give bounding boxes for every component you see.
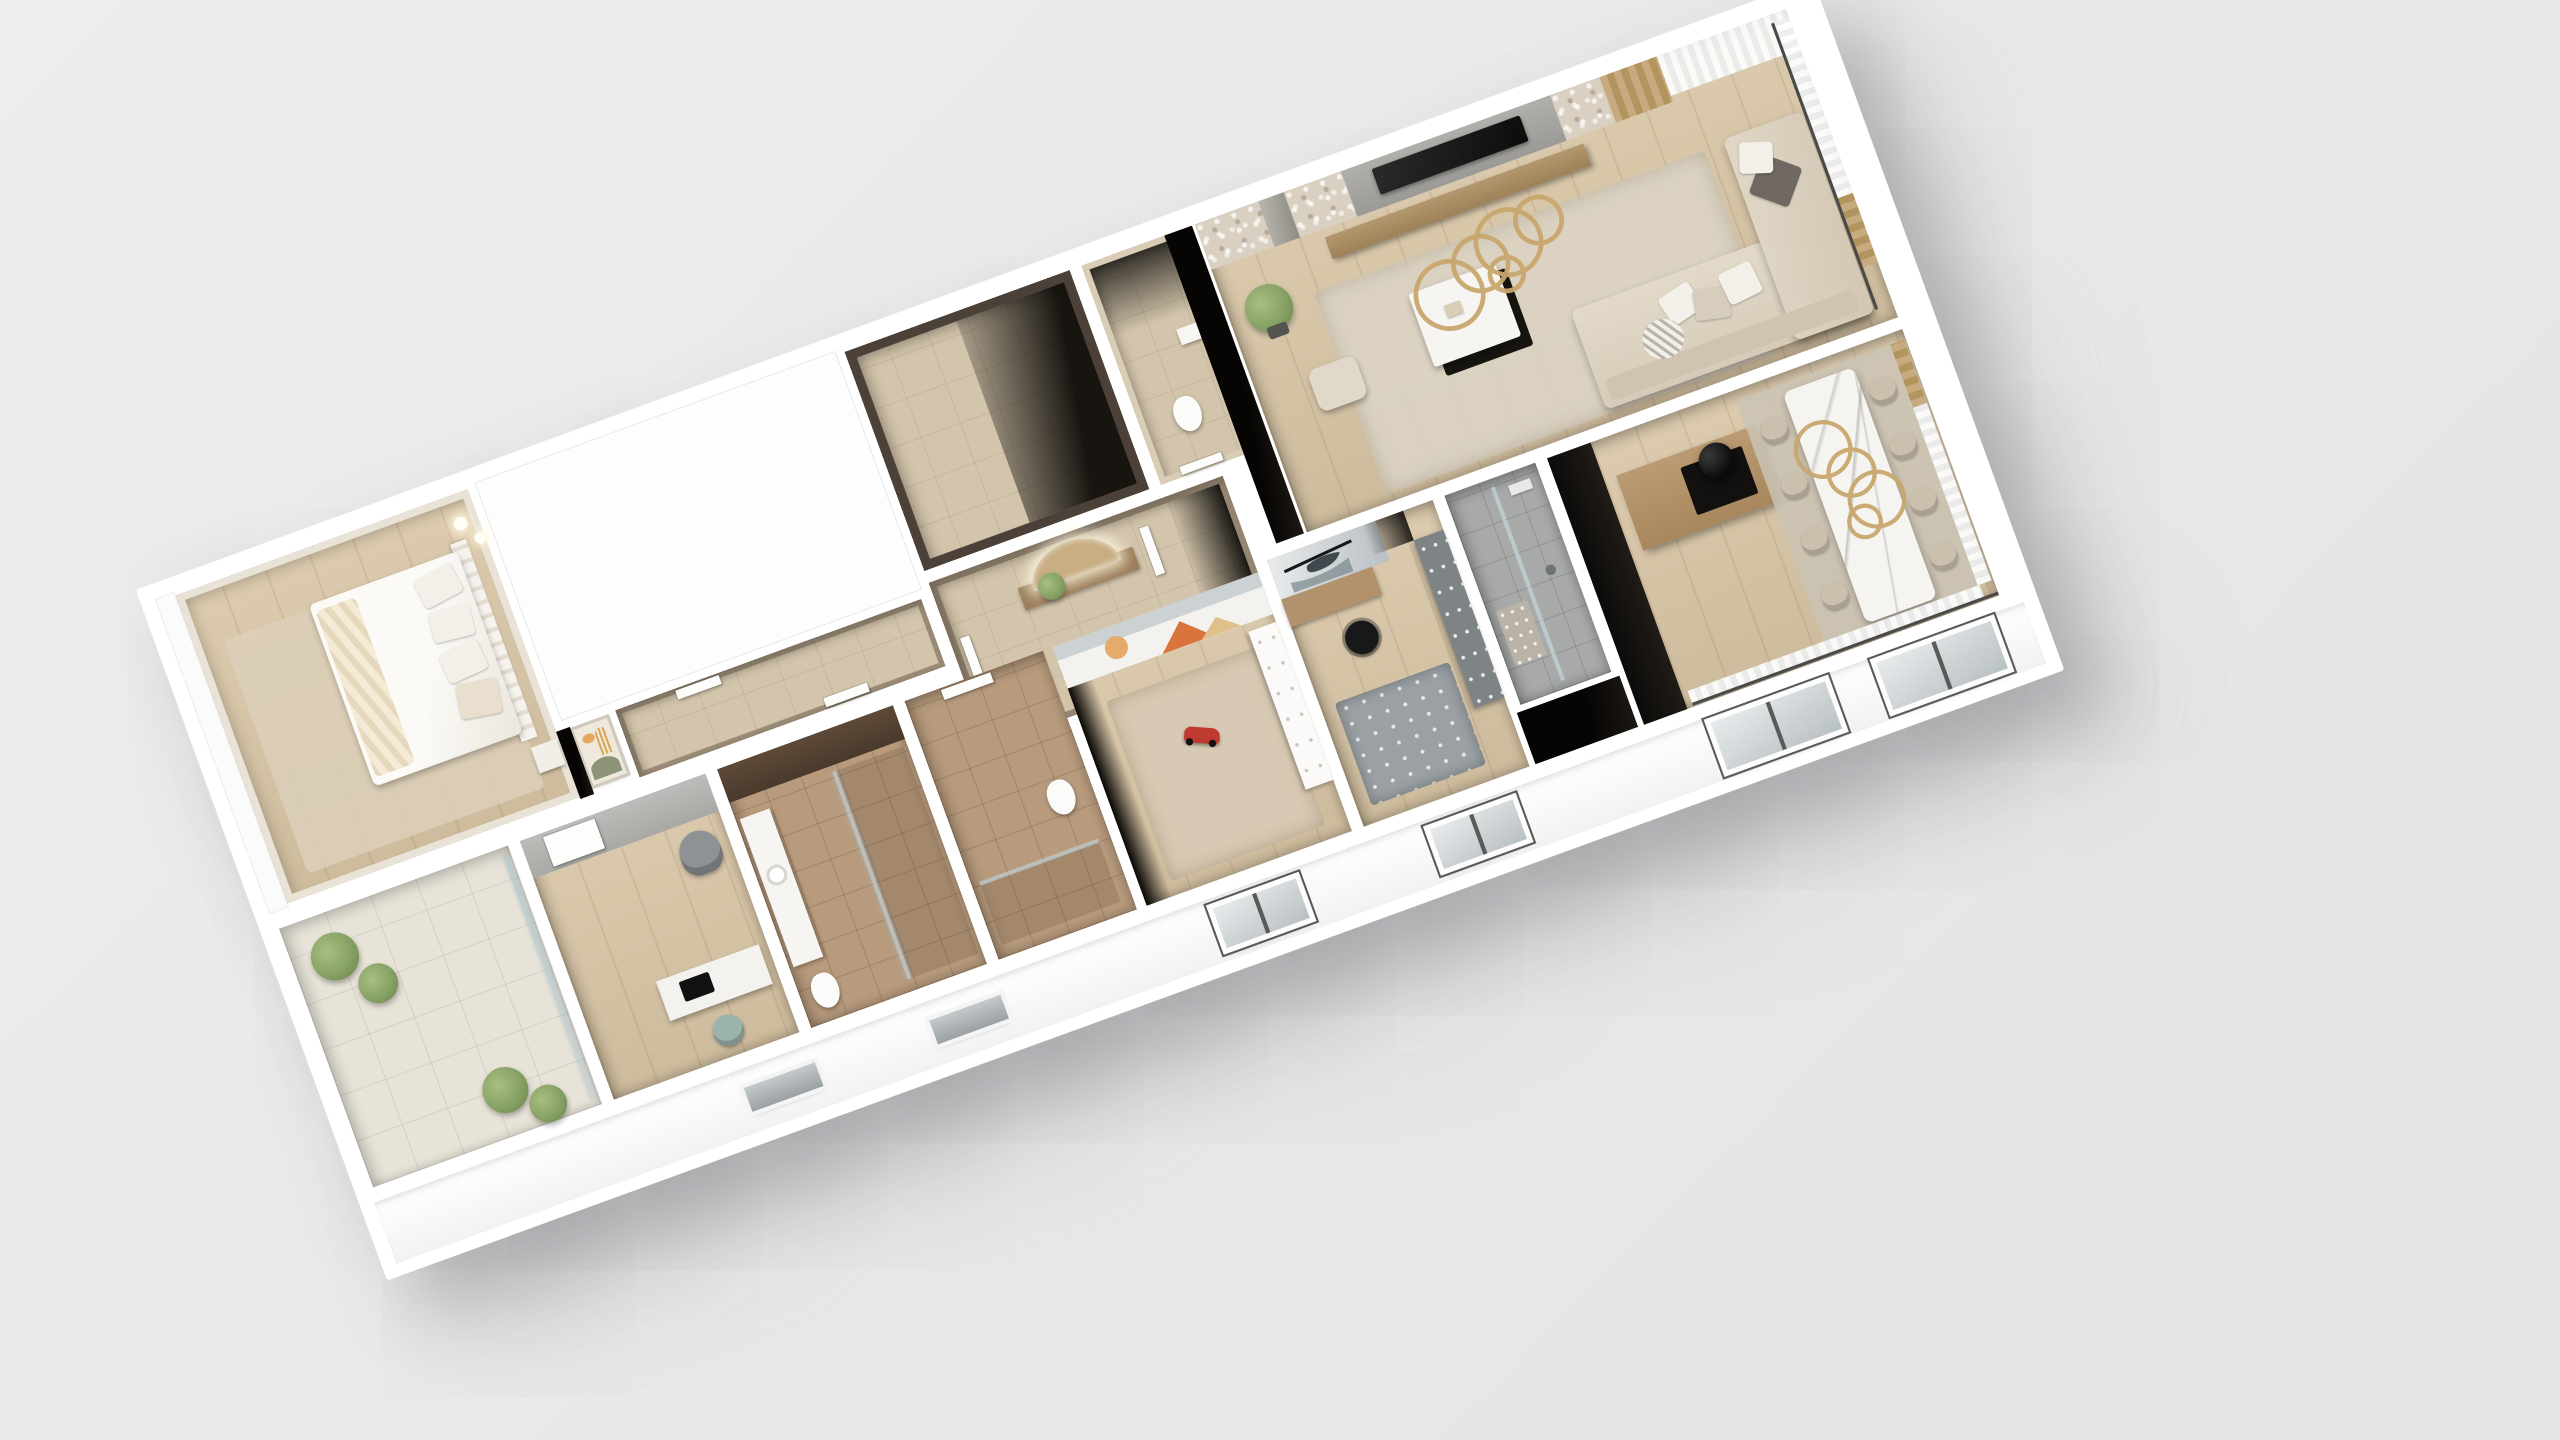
artwork-hill (588, 753, 622, 781)
apartment-3d-floorplan (136, 0, 2065, 1281)
teen-rug-dotted (1335, 662, 1487, 806)
balcony-plant (353, 958, 404, 1009)
facade-slit-window (744, 1062, 824, 1112)
bath-toilet (807, 969, 845, 1012)
window-mullion (1931, 641, 1952, 690)
window-mullion (1469, 814, 1487, 855)
office-chair-black (1340, 616, 1383, 659)
toy-race-car-red (1184, 726, 1221, 744)
balcony-plant (476, 1060, 535, 1119)
pendant-light (452, 515, 469, 532)
facade-slit-window (929, 995, 1009, 1045)
study-chair-teal (708, 1010, 748, 1050)
sofa-pillow (1739, 141, 1774, 174)
study-armchair (673, 825, 728, 881)
window-mullion (1252, 893, 1270, 934)
shower-fixture (1508, 478, 1533, 496)
wc-toilet (1169, 392, 1207, 435)
artwork-arches (593, 725, 614, 755)
entry-door (1139, 525, 1165, 576)
balcony-plant (304, 926, 366, 988)
window-mullion (1766, 701, 1787, 750)
shower-drain (1544, 563, 1557, 576)
bath2-toilet (1042, 776, 1080, 819)
study-desk (656, 944, 773, 1021)
